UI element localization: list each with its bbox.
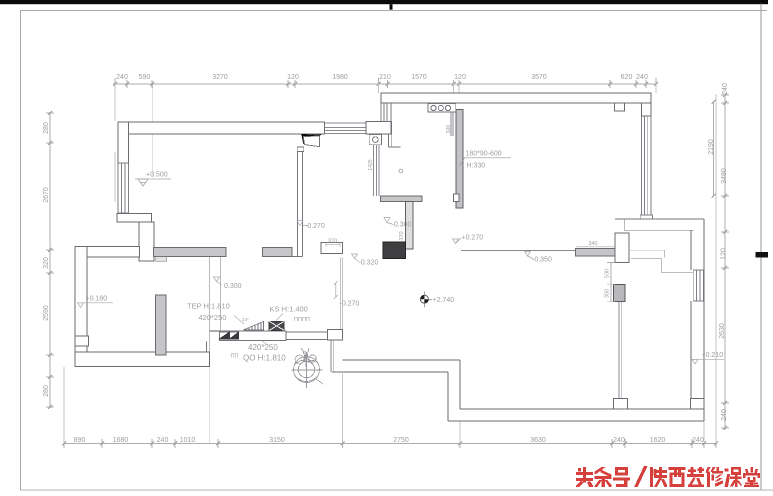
svg-text:2670: 2670: [43, 187, 50, 203]
svg-text:240: 240: [636, 74, 648, 81]
svg-text:3480: 3480: [721, 168, 728, 184]
svg-text:0.300: 0.300: [224, 283, 242, 290]
svg-text:QO H:1.810: QO H:1.810: [243, 354, 286, 363]
svg-text:280: 280: [43, 385, 50, 397]
svg-text:1010: 1010: [180, 437, 196, 444]
svg-text:1980: 1980: [332, 74, 348, 81]
svg-text:-0.300: -0.300: [392, 222, 412, 229]
svg-text:3270: 3270: [212, 74, 228, 81]
svg-text:280: 280: [43, 122, 50, 134]
svg-text:1680: 1680: [113, 437, 129, 444]
svg-text:3150: 3150: [269, 437, 285, 444]
svg-text:+0.270: +0.270: [462, 235, 484, 242]
svg-text:530: 530: [605, 269, 611, 278]
svg-text:-0.270: -0.270: [340, 301, 360, 308]
svg-text:+0.180: +0.180: [86, 296, 108, 303]
svg-text:1620: 1620: [650, 437, 666, 444]
svg-text:240: 240: [721, 409, 728, 421]
svg-text:KS H:1.400: KS H:1.400: [270, 305, 308, 314]
svg-text:14*: 14*: [242, 317, 249, 322]
svg-text:+0.210: +0.210: [702, 352, 724, 359]
svg-text:420*250: 420*250: [199, 313, 227, 322]
svg-text:2190: 2190: [708, 139, 715, 155]
svg-text:320: 320: [43, 257, 50, 269]
svg-text:3630: 3630: [530, 437, 546, 444]
svg-text:2630: 2630: [719, 323, 726, 339]
svg-text:120: 120: [454, 74, 466, 81]
svg-text:370: 370: [399, 231, 405, 240]
svg-text:+2.740: +2.740: [433, 297, 455, 304]
svg-text:1570: 1570: [411, 74, 427, 81]
svg-text:3570: 3570: [531, 74, 547, 81]
svg-text:210: 210: [379, 74, 391, 81]
svg-text:120: 120: [721, 248, 728, 260]
svg-text:320: 320: [328, 239, 337, 245]
svg-text:240: 240: [116, 74, 128, 81]
svg-text:2750: 2750: [393, 437, 409, 444]
svg-text:120: 120: [287, 74, 299, 81]
svg-text:240: 240: [157, 437, 169, 444]
svg-text:350: 350: [605, 289, 611, 298]
svg-text:890: 890: [74, 437, 86, 444]
svg-text:-0.320: -0.320: [359, 260, 379, 267]
svg-text:180*90-600: 180*90-600: [466, 151, 502, 158]
svg-text:240: 240: [613, 437, 625, 444]
svg-text:920: 920: [446, 125, 452, 134]
svg-text:340: 340: [588, 241, 597, 247]
svg-text:TEP H:1.810: TEP H:1.810: [187, 302, 230, 311]
svg-text:240: 240: [692, 437, 704, 444]
svg-text:ΠΠΠΠ: ΠΠΠΠ: [294, 317, 310, 323]
svg-text:-0.270: -0.270: [305, 223, 325, 230]
svg-text:420*250: 420*250: [248, 343, 278, 352]
svg-text:2590: 2590: [43, 305, 50, 321]
svg-text:590: 590: [139, 74, 151, 81]
svg-text:ΠΠ: ΠΠ: [231, 354, 239, 360]
svg-text:1425: 1425: [368, 159, 374, 170]
svg-text:+0.500: +0.500: [146, 172, 168, 179]
svg-text:620: 620: [621, 74, 633, 81]
svg-text:240: 240: [722, 83, 729, 95]
svg-text:-0.350: -0.350: [532, 257, 552, 264]
svg-text:H:330: H:330: [467, 163, 486, 170]
